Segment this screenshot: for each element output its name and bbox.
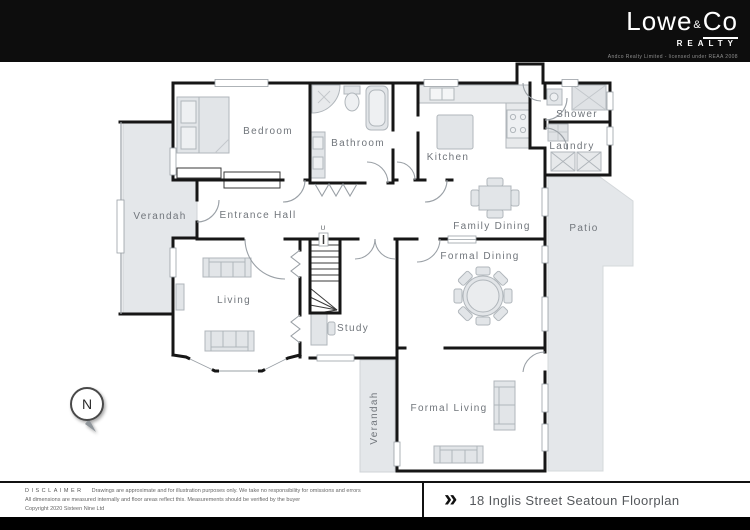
formal-dining-table xyxy=(454,267,512,325)
room-label-formal-living: Formal Living xyxy=(411,403,488,414)
corner-shower xyxy=(312,85,340,113)
room-label-bedroom: Bedroom xyxy=(243,126,293,137)
room-label-verandah-left: Verandah xyxy=(133,211,186,222)
formal-living-sofa xyxy=(494,381,515,430)
disclaimer-text-1: Drawings are approximate and for illustr… xyxy=(92,488,361,494)
shower-basin xyxy=(547,89,562,105)
bottom-black-bar xyxy=(0,517,750,530)
wardrobe xyxy=(177,168,221,178)
shower-cabin xyxy=(572,85,606,110)
room-label-study: Study xyxy=(337,323,369,334)
study-desk xyxy=(311,313,335,345)
toilet xyxy=(344,86,360,111)
living-sofa xyxy=(203,258,251,277)
living-sofa xyxy=(205,331,254,351)
formal-living-sofa xyxy=(434,446,483,463)
patio-area xyxy=(548,177,633,471)
room-label-verandah-bottom: Verandah xyxy=(369,391,380,444)
bathtub xyxy=(366,86,388,130)
room-label-formal-dining: Formal Dining xyxy=(440,251,519,262)
floor-plan-canvas: Bedroom Bathroom Kitchen Shower Laundry … xyxy=(0,0,750,530)
washing-machines xyxy=(551,152,601,171)
room-label-kitchen: Kitchen xyxy=(427,152,469,163)
family-dining-table xyxy=(471,178,519,218)
compass-letter: N xyxy=(82,396,92,412)
disclaimer-block: DISCLAIMERDrawings are approximate and f… xyxy=(0,483,424,517)
kitchen-island xyxy=(437,115,473,149)
room-label-laundry: Laundry xyxy=(549,141,594,152)
chevrons-icon: » xyxy=(444,487,457,511)
stairs-entry xyxy=(319,233,328,246)
stairs-up-label: U xyxy=(321,225,326,232)
disclaimer-line-1: DISCLAIMERDrawings are approximate and f… xyxy=(25,487,412,496)
floorplan-page: Lowe&Co REALTY Andco Realty Limited - li… xyxy=(0,0,750,530)
disclaimer-title: DISCLAIMER xyxy=(25,488,84,494)
bed xyxy=(177,97,229,153)
stove xyxy=(507,110,529,138)
title-plate: » 18 Inglis Street Seatoun Floorplan xyxy=(424,483,750,517)
room-label-living: Living xyxy=(217,295,251,306)
staircase xyxy=(310,245,340,313)
floorplan-title: 18 Inglis Street Seatoun Floorplan xyxy=(469,493,679,508)
footer-bar: DISCLAIMERDrawings are approximate and f… xyxy=(0,481,750,517)
disclaimer-line-3: Copyright 2020 Sixteen Nine Ltd xyxy=(25,505,412,514)
room-label-bathroom: Bathroom xyxy=(331,138,385,149)
vanity xyxy=(311,132,325,178)
disclaimer-line-2: All dimensions are measured internally a… xyxy=(25,496,412,505)
room-label-family-dining: Family Dining xyxy=(453,221,530,232)
room-label-shower: Shower xyxy=(556,109,598,120)
room-label-patio: Patio xyxy=(569,223,598,234)
north-compass: N xyxy=(71,388,103,432)
side-table xyxy=(176,284,184,310)
room-label-entrance-hall: Entrance Hall xyxy=(220,210,297,221)
